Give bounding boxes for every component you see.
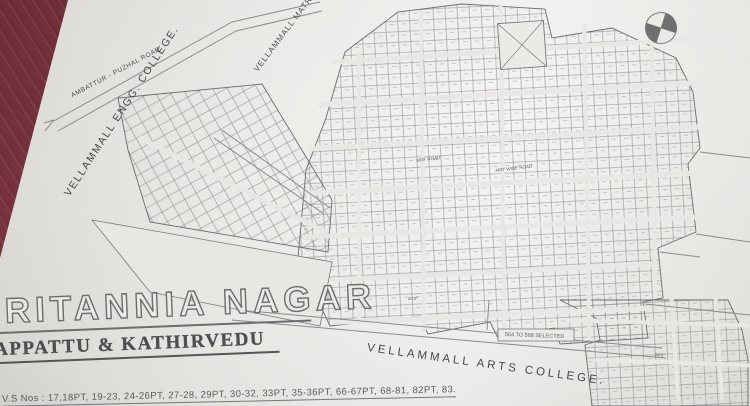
- park-square: [497, 20, 546, 69]
- label-road-width-3: 24'0": [408, 296, 418, 301]
- label-road-width-4: 24'0": [655, 352, 665, 358]
- layout-map-paper: AMBATTUR - PUZHAL ROAD VELLAMMALL ENGG. …: [0, 0, 750, 406]
- photo-of-plot-layout-map: AMBATTUR - PUZHAL ROAD VELLAMMALL ENGG. …: [0, 0, 750, 406]
